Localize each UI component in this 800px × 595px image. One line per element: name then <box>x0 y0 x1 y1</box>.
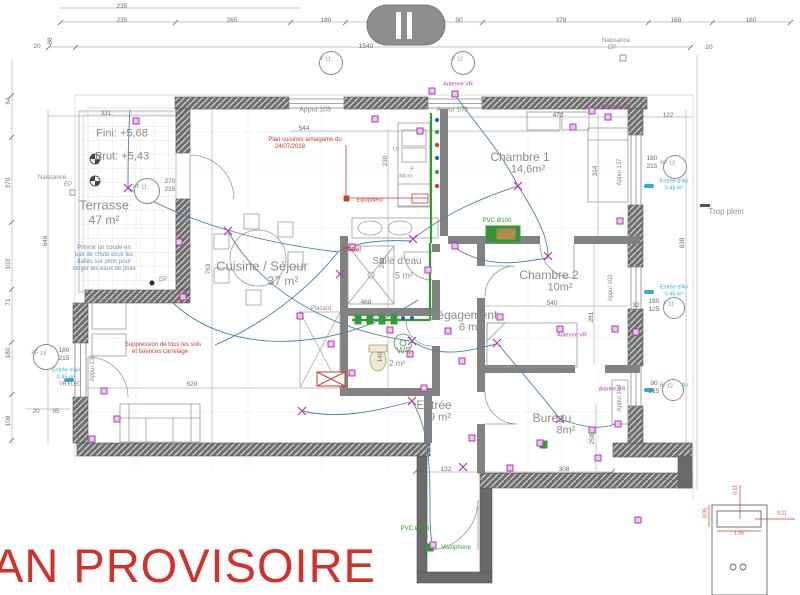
socket-symbol <box>537 440 543 446</box>
trop-plein-mark <box>700 204 710 207</box>
socket-symbol <box>615 421 621 427</box>
light-x <box>493 339 501 347</box>
socket-symbol <box>570 124 576 130</box>
pvc-duct <box>486 226 520 242</box>
light-x <box>514 182 522 190</box>
light-x <box>556 415 564 423</box>
socket-symbol <box>387 327 393 333</box>
socket-symbol <box>633 329 639 335</box>
detail-box <box>709 485 795 595</box>
socket-symbol <box>557 326 563 332</box>
socket-symbol <box>297 313 303 319</box>
socket-symbol <box>430 542 436 548</box>
vmc-box <box>317 372 345 386</box>
socket-symbol <box>497 314 503 320</box>
socket-symbol <box>372 116 378 122</box>
light-x <box>459 463 467 471</box>
light-x <box>408 397 416 405</box>
ep-drain-dot <box>150 281 155 286</box>
ep-top-right <box>620 55 626 61</box>
socket-symbol <box>605 114 611 120</box>
socket-symbol <box>429 88 435 94</box>
socket-symbol <box>176 239 182 245</box>
chimney-symbol <box>367 5 445 45</box>
kitchen <box>344 123 430 207</box>
provisional-stamp: AN PROVISOIRE <box>0 538 376 593</box>
socket-symbol <box>328 341 334 347</box>
socket-symbol <box>612 326 618 332</box>
socket-symbol <box>617 218 623 224</box>
shower <box>348 246 394 304</box>
socket-symbol <box>407 351 413 357</box>
socket-symbol <box>114 416 120 422</box>
socket-symbol <box>469 435 475 441</box>
socket-symbol <box>133 118 139 124</box>
socket-symbol <box>507 465 513 471</box>
socket-symbol <box>589 427 595 433</box>
socket-symbol <box>349 370 355 376</box>
ep-top-left <box>70 190 75 195</box>
light-x <box>409 235 417 243</box>
socket-symbol <box>89 436 95 442</box>
floor-plan-canvas: Terrasse47 m²Cuisine / Séjour37 m²Salle … <box>0 0 800 595</box>
armchair <box>92 299 126 329</box>
socket-symbol <box>595 455 601 461</box>
side-table <box>92 334 126 356</box>
socket-symbol <box>589 108 595 114</box>
socket-symbol <box>180 294 186 300</box>
toilet <box>369 345 387 371</box>
light-x <box>298 407 306 415</box>
plan-drawing <box>0 0 800 595</box>
socket-symbol <box>101 388 107 394</box>
socket-symbol <box>445 328 451 334</box>
socket-symbol <box>452 91 458 97</box>
desk <box>612 380 628 424</box>
sofa <box>120 404 200 442</box>
socket-symbol <box>452 243 458 249</box>
kitchen-red-lines <box>344 145 428 203</box>
socket-symbol <box>417 128 423 134</box>
bed-chambre1 <box>588 128 628 202</box>
interior-walls <box>340 109 640 473</box>
socket-symbol <box>635 517 641 523</box>
socket-symbol <box>421 385 427 391</box>
socket-symbol <box>459 358 465 364</box>
socket-symbol <box>349 244 355 250</box>
socket-symbol <box>425 267 431 273</box>
closet-1 <box>527 112 560 130</box>
